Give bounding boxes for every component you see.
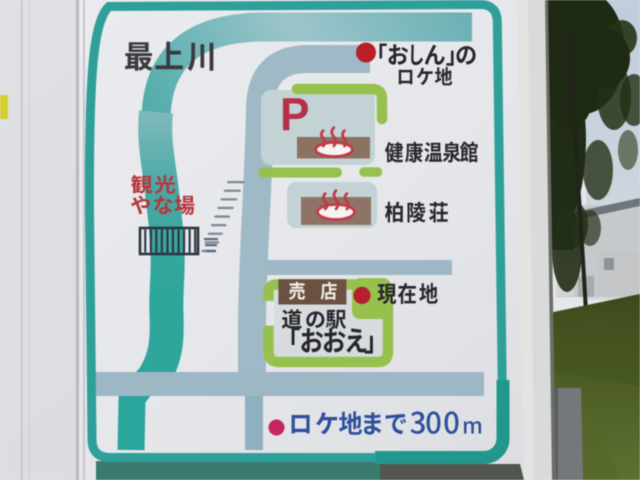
svg-text:P: P [280, 89, 310, 141]
